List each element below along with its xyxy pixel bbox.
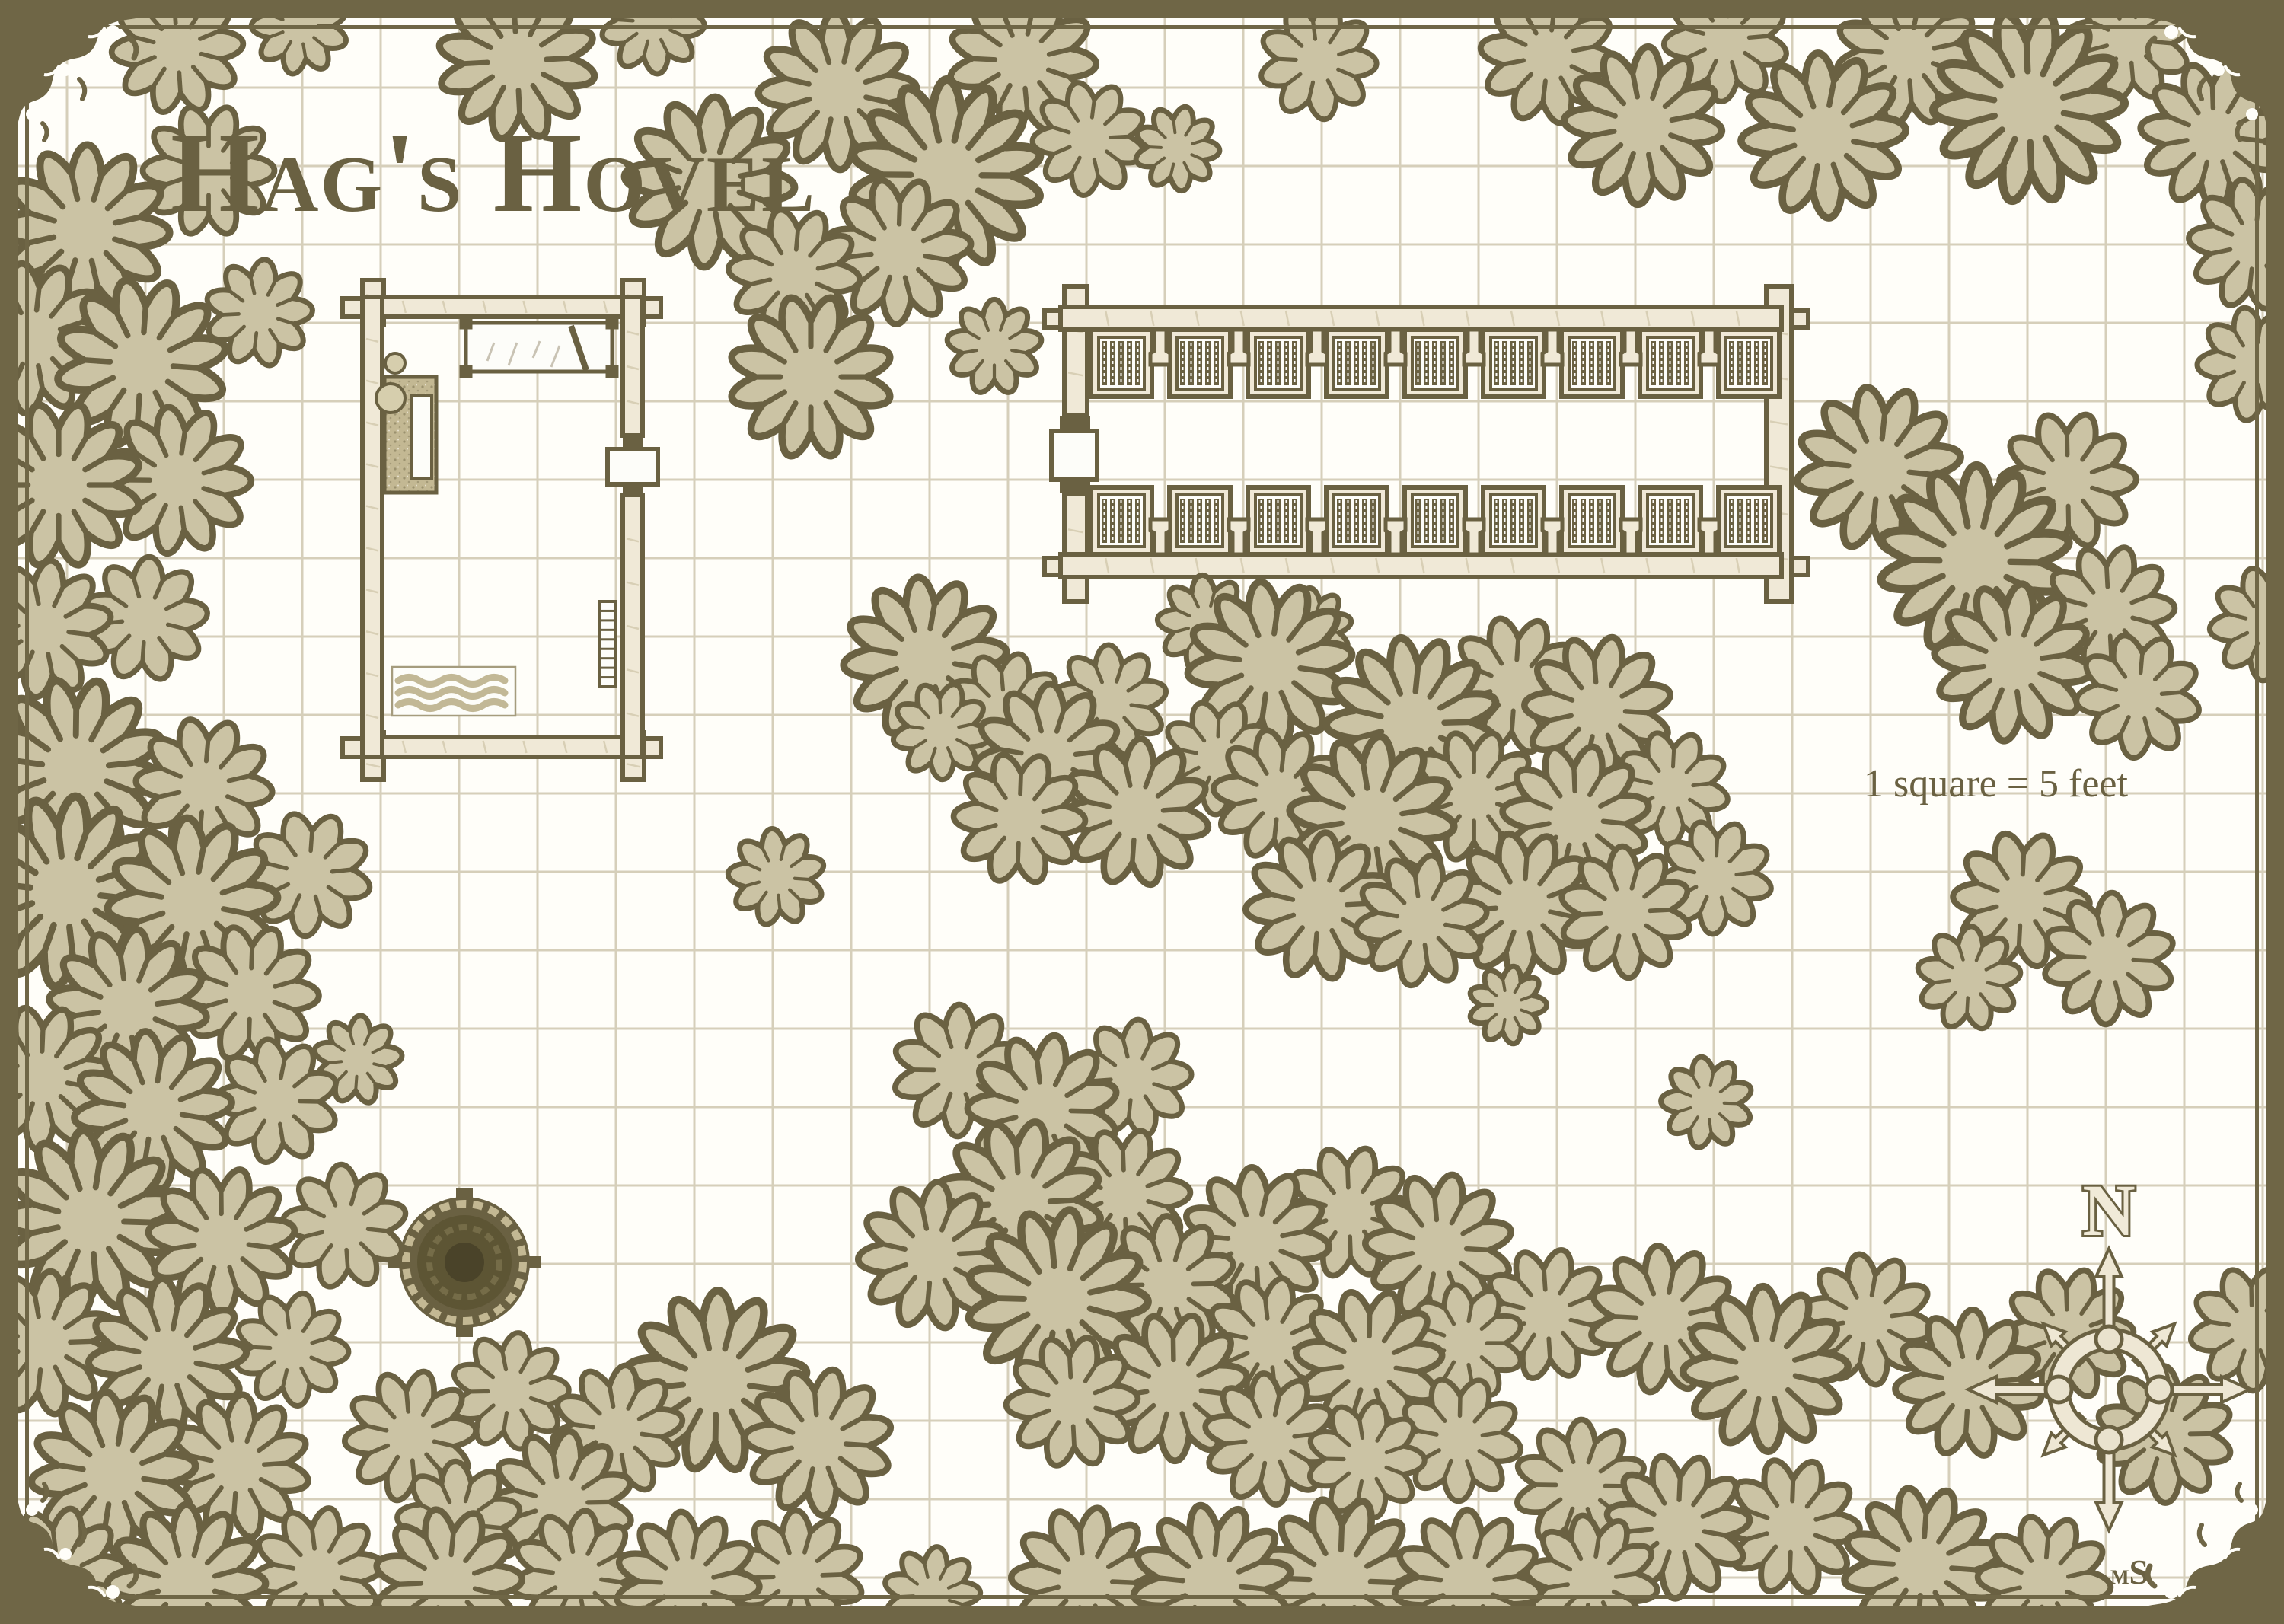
tree-petal-line [1666, 1347, 1668, 1370]
tree-petal-line [1037, 1059, 1040, 1083]
tree-petal-line [690, 1610, 692, 1624]
tree-petal-line [94, 1254, 96, 1282]
well-water [445, 1243, 484, 1282]
tree-petal-line [1315, 933, 1317, 956]
tree-petal-line [2212, 85, 2213, 108]
tree-petal-line [1960, 666, 1984, 670]
tree-petal-line [1495, 1576, 1518, 1580]
tree-petal-line [254, 333, 257, 349]
tree-petal-line [1313, 21, 1316, 39]
tree-petal-line [1544, 1269, 1546, 1290]
tree-petal-line [1680, 1477, 1680, 1500]
tree-petal-line [514, 7, 515, 31]
tree-petal-line [1131, 705, 1149, 707]
bed-post [460, 317, 473, 330]
tree-petal-line [58, 827, 61, 857]
tree-petal-line [76, 707, 77, 735]
tree-petal-line [1123, 1150, 1124, 1170]
tree-petal-line [1265, 1298, 1268, 1319]
tree-petal-line [1050, 1200, 1076, 1201]
tree-petal-line [822, 1575, 843, 1575]
fence-post [1542, 330, 1562, 365]
tree-canopy [1845, 1488, 2000, 1624]
tree-petal-line [1823, 463, 1849, 466]
tree-petal-line [573, 1425, 593, 1428]
tree-petal-line [1460, 1396, 1461, 1416]
tree [1032, 83, 1144, 196]
tree-canopy [728, 829, 823, 925]
tree-petal-line [2017, 691, 2021, 716]
fence-post [1150, 330, 1170, 365]
compass-node [2096, 1326, 2122, 1352]
fence-post [1150, 519, 1170, 554]
tree-petal-line [1274, 608, 1278, 634]
tree-petal-line [1070, 1357, 1070, 1377]
tree [2197, 308, 2284, 420]
tree [2191, 1269, 2284, 1390]
tree-petal-line [312, 1528, 314, 1549]
tree-petal-line [451, 1532, 454, 1555]
tree-petal-line [2066, 1289, 2067, 1310]
tree-petal-line [1858, 50, 1881, 52]
tree-petal-line [2027, 41, 2028, 71]
tree-canopy [247, 814, 370, 936]
tree-petal-line [1128, 1100, 1131, 1118]
hut-log-cap [343, 298, 362, 317]
tree-petal-line [1207, 1613, 1209, 1624]
tree-petal-line [206, 740, 209, 761]
tree-petal-line [1080, 1530, 1082, 1553]
counter-shelf [412, 395, 432, 479]
tree [2209, 569, 2284, 681]
tree-petal-line [234, 1493, 235, 1516]
tree-petal-line [959, 1252, 982, 1254]
tree-petal-line [1, 884, 30, 887]
fence-post [1621, 519, 1641, 554]
tree-petal-line [2069, 506, 2069, 528]
tree-petal-line [1092, 100, 1094, 118]
tree-petal-line [1792, 1479, 1793, 1501]
tree-petal-line [1512, 711, 1514, 732]
tree-petal-line [908, 726, 923, 729]
tree-petal-line [642, 1434, 662, 1437]
scale-note: 1 square = 5 feet [1864, 761, 2128, 806]
fence-post [1699, 519, 1719, 554]
compass-north-label: N [2082, 1169, 2135, 1251]
tree-petal-line [1225, 1441, 1246, 1444]
tree-petal-line [1910, 81, 1912, 104]
tree-petal-line [1581, 914, 1601, 914]
fence-post [1621, 330, 1641, 365]
tree-petal-line [547, 58, 571, 59]
tree-petal-line [1709, 1120, 1711, 1134]
tree-petal-line [157, 1000, 181, 1004]
tree-petal-line [849, 254, 872, 257]
tree-petal-line [69, 632, 90, 634]
pot [376, 384, 405, 413]
garden-gate [1051, 431, 1097, 480]
tree-petal-line [2162, 692, 2182, 694]
hut-log-cap [644, 739, 661, 757]
bed-post [460, 365, 473, 378]
tree-petal-line [1278, 59, 1296, 59]
tree-petal-line [1071, 1111, 1095, 1112]
tree-petal-line [0, 1081, 14, 1083]
tree-petal-line [1613, 1316, 1636, 1318]
tree-petal-line [287, 1310, 289, 1329]
tree-petal-line [2190, 1434, 2212, 1434]
tree-petal-line [1026, 88, 1028, 111]
tree-petal-line [750, 1386, 778, 1389]
tree-petal-line [463, 62, 487, 64]
tree-petal-line [2251, 1286, 2252, 1306]
fence-post [1229, 330, 1249, 365]
tree-canopy [745, 1370, 890, 1515]
tree-petal-line [1051, 1238, 1054, 1266]
fence-post [1229, 519, 1249, 554]
compass-node [2046, 1377, 2072, 1402]
tree [0, 561, 110, 697]
tree [735, 1511, 862, 1624]
tree [182, 927, 319, 1059]
garden-rail-cap [1791, 558, 1808, 575]
tree [745, 1370, 890, 1515]
tree-petal-line [1466, 1249, 1489, 1250]
tree-petal-line [1444, 722, 1471, 723]
tree-canopy [1262, 4, 1376, 120]
tree-canopy [617, 1512, 760, 1624]
tree-petal-line [2153, 42, 2173, 43]
tree-petal-line [2040, 1607, 2042, 1624]
tree-petal-line [109, 762, 137, 765]
tree-petal-line [649, 0, 650, 3]
tree-petal-line [2241, 139, 2264, 141]
tree-petal-line [42, 1029, 43, 1051]
tree-petal-line [1526, 856, 1527, 879]
tree-petal-line [2132, 63, 2133, 83]
tree-petal-line [179, 72, 180, 93]
bed-post [606, 365, 619, 378]
tree-petal-line [1163, 809, 1186, 810]
tree-petal-line [1415, 876, 1418, 896]
tree [0, 405, 139, 565]
tree-petal-line [1218, 718, 1219, 736]
tree [1470, 966, 1546, 1044]
tree-petal-line [1020, 774, 1021, 794]
tree [2077, 636, 2199, 758]
tree-canopy [2191, 1269, 2284, 1390]
tree-petal-line [398, 1584, 421, 1584]
tree-petal-line [1425, 945, 1428, 965]
tree-petal-line [251, 946, 252, 968]
tree [237, 1294, 349, 1406]
tree-petal-line [1503, 1019, 1505, 1032]
tree-petal-line [846, 1444, 869, 1446]
tree-petal-line [1214, 656, 1240, 660]
tree-petal-line [1147, 147, 1161, 148]
tree-petal-line [120, 955, 124, 979]
tree-petal-line [972, 59, 995, 59]
tree-petal-line [0, 339, 5, 340]
tree [617, 1512, 760, 1624]
tree-petal-line [716, 1415, 716, 1443]
tree-petal-line [1650, 910, 1670, 911]
tree-petal-line [928, 1613, 930, 1624]
tree-canopy [0, 561, 110, 697]
tree-petal-line [1933, 981, 1949, 983]
tree-petal-line [1549, 1338, 1550, 1359]
fenced-garden [1045, 286, 1808, 601]
tree [1395, 1510, 1541, 1624]
hag-hut [343, 280, 661, 780]
hut-wall [623, 297, 643, 436]
tree-petal-line [1241, 1587, 1265, 1589]
tree-petal-line [1552, 9, 1554, 30]
tree-petal-line [300, 1102, 320, 1102]
tree-petal-line [1018, 843, 1019, 863]
tree-petal-line [37, 287, 39, 311]
fence-post [1307, 330, 1327, 365]
fence-post [1699, 330, 1719, 365]
tree-petal-line [356, 1077, 356, 1090]
tree-petal-line [1350, 1236, 1351, 1257]
tree-petal-line [638, 1581, 661, 1582]
tree [1661, 1057, 1751, 1147]
tree-petal-line [1073, 1426, 1074, 1447]
tree-canopy [1978, 1517, 2111, 1624]
garden-rail-horizontal [1061, 307, 1782, 330]
tree-canopy [1395, 1510, 1541, 1624]
tree-petal-line [996, 1298, 1024, 1299]
tree-petal-line [1274, 819, 1277, 840]
compass-node [2146, 1377, 2172, 1402]
tree-petal-line [1629, 1530, 1651, 1532]
tree-petal-line [815, 1392, 816, 1415]
tree-petal-line [1016, 1147, 1018, 1173]
tree-petal-line [940, 697, 941, 713]
tree-petal-line [62, 1601, 64, 1622]
tree-petal-line [1111, 136, 1129, 137]
tree-petal-line [2046, 1536, 2048, 1557]
tree-petal-line [2268, 584, 2270, 602]
tree-petal-line [2011, 562, 2040, 563]
hut-log-cap [343, 739, 362, 757]
tree-petal-line [252, 1347, 270, 1348]
tree-petal-line [2019, 926, 2020, 947]
tree [1011, 1508, 1156, 1624]
tree-petal-line [1262, 694, 1266, 720]
tree-petal-line [1673, 748, 1674, 767]
tree-petal-line [144, 306, 145, 333]
tree-petal-line [795, 879, 810, 879]
tree-petal-line [1503, 978, 1505, 991]
tree-petal-line [138, 396, 139, 423]
tree-petal-line [2257, 199, 2259, 220]
tree [1845, 1488, 2000, 1624]
tree-petal-line [1001, 671, 1003, 690]
tree-petal-line [1543, 81, 1546, 102]
tree-petal-line [617, 20, 633, 21]
tree-petal-line [588, 1502, 611, 1503]
tree-petal-line [1996, 1379, 2019, 1381]
fence-post [1386, 330, 1405, 365]
tree-canopy [602, 0, 704, 74]
tree-canopy [2189, 180, 2284, 309]
tree-petal-line [311, 831, 312, 851]
tree-canopy [2197, 308, 2284, 420]
tree [252, 1508, 383, 1624]
tree-canopy [251, 0, 346, 74]
tree-petal-line [53, 1530, 56, 1551]
tree-petal-line [779, 895, 780, 911]
tree-petal-line [2064, 956, 2085, 957]
tree-petal-line [532, 1570, 553, 1573]
tree-petal-line [601, 1580, 622, 1583]
tree-petal-line [2250, 269, 2252, 289]
tree [1561, 847, 1689, 978]
tree-canopy [1561, 847, 1689, 978]
tree-petal-line [14, 761, 43, 764]
tree-canopy [1011, 1508, 1156, 1624]
tree-petal-line [1319, 1367, 1341, 1370]
tree-petal-line [1882, 413, 1885, 439]
tree-petal-line [1909, 560, 1939, 561]
tree-canopy [237, 1294, 349, 1406]
artist-signature: MS [2110, 1555, 2148, 1590]
tree-petal-line [1281, 750, 1284, 771]
tree-petal-line [1967, 998, 1968, 1014]
tree-petal-line [1892, 1313, 1912, 1316]
bed-post [606, 317, 619, 330]
tree-petal-line [1925, 1512, 1926, 1536]
tree-petal-line [1215, 1530, 1217, 1554]
tree-petal-line [75, 1012, 99, 1016]
tree [2141, 64, 2284, 209]
garden-rail-cap [1045, 311, 1061, 327]
tree-petal-line [333, 869, 352, 872]
tree-petal-line [181, 508, 184, 531]
fence-post [1464, 519, 1484, 554]
tree-petal-line [2005, 609, 2009, 633]
tree-petal-line [2107, 566, 2107, 587]
bed [466, 323, 612, 372]
tree-petal-line [1194, 1284, 1215, 1284]
tree-petal-line [142, 643, 144, 662]
tree [1136, 107, 1220, 190]
tree-petal-line [927, 1283, 930, 1306]
tree-petal-line [1338, 1611, 1338, 1624]
tree [251, 0, 346, 74]
tree-canopy [2209, 569, 2284, 681]
hut-door [608, 449, 658, 484]
tree-petal-line [174, 366, 200, 368]
tree-petal-line [899, 201, 900, 224]
signature-initial-s: S [2129, 1552, 2149, 1591]
signature-initial-m: M [2110, 1566, 2129, 1588]
tree-petal-line [2023, 853, 2024, 874]
tree-petal-line [1966, 1411, 1967, 1434]
tree-petal-line [1594, 659, 1596, 682]
tree-canopy [2077, 636, 2199, 758]
tree-petal-line [1790, 1552, 1791, 1574]
tree-petal-line [1728, 0, 1730, 17]
tree-petal-line [1112, 1582, 1135, 1583]
tree-canopy [1918, 927, 2021, 1029]
tree-petal-line [1873, 499, 1876, 525]
tree-canopy [1032, 83, 1144, 196]
fence-post [1386, 519, 1405, 554]
garden-rail-horizontal [1061, 554, 1782, 577]
tree-petal-line [1158, 1578, 1182, 1581]
tree-petal-line [174, 3, 176, 24]
tree-petal-line [1750, 36, 1769, 37]
tree-petal-line [84, 360, 110, 362]
fence-post [1464, 330, 1484, 365]
tree-petal-line [1952, 1568, 1976, 1570]
tree-petal-line [321, 1597, 323, 1618]
map-artwork: N [0, 0, 2284, 1624]
tree [0, 1509, 126, 1624]
tree-petal-line [222, 314, 238, 314]
tree [728, 829, 823, 925]
compass-node [2096, 1427, 2122, 1453]
tree-canopy [735, 1511, 862, 1624]
tree-petal-line [1434, 1197, 1437, 1220]
tree [732, 298, 890, 456]
tree-petal-line [1724, 1103, 1739, 1104]
tree-petal-line [2141, 653, 2142, 673]
tree-petal-line [327, 1061, 341, 1063]
fence-post [1542, 519, 1562, 554]
tree-petal-line [1418, 1577, 1440, 1580]
garden-rail-cap [1045, 558, 1061, 575]
tree-petal-line [1348, 1167, 1348, 1188]
tree [1918, 927, 2021, 1029]
well [388, 1188, 541, 1337]
tree-petal-line [368, 1229, 388, 1231]
tree-petal-line [1737, 873, 1755, 875]
tree-petal-line [1415, 665, 1418, 691]
ladder [599, 601, 616, 687]
tree-petal-line [1919, 1596, 1920, 1620]
hut-log-cap [644, 298, 661, 317]
tree-petal-line [2067, 433, 2068, 455]
tree-petal-line [1370, 1313, 1370, 1336]
map-canvas: N Hag's Hovel 1 square = 5 feet MS [0, 0, 2284, 1624]
tree-petal-line [182, 430, 186, 453]
garden-rail-cap [1791, 311, 1808, 327]
tree-petal-line [249, 1245, 272, 1248]
hut-wall [362, 297, 382, 757]
tree-petal-line [1574, 768, 1574, 791]
tree [1978, 1517, 2111, 1624]
tree-petal-line [0, 624, 18, 626]
tree-petal-line [38, 1370, 40, 1392]
tree-petal-line [1717, 838, 1718, 856]
tree-petal-line [1300, 668, 1326, 672]
tree-petal-line [1132, 840, 1134, 863]
tree-petal-line [898, 1596, 914, 1597]
tree-petal-line [1693, 783, 1711, 786]
tree-petal-line [2030, 142, 2032, 172]
tree-petal-line [69, 927, 72, 956]
tree-petal-line [1603, 822, 1626, 824]
garden-rail-vertical [1064, 493, 1087, 601]
tree-petal-line [124, 1221, 152, 1222]
tree-canopy [1136, 107, 1220, 190]
tree-canopy [1134, 1505, 1290, 1624]
tree-petal-line [1868, 1562, 1893, 1564]
